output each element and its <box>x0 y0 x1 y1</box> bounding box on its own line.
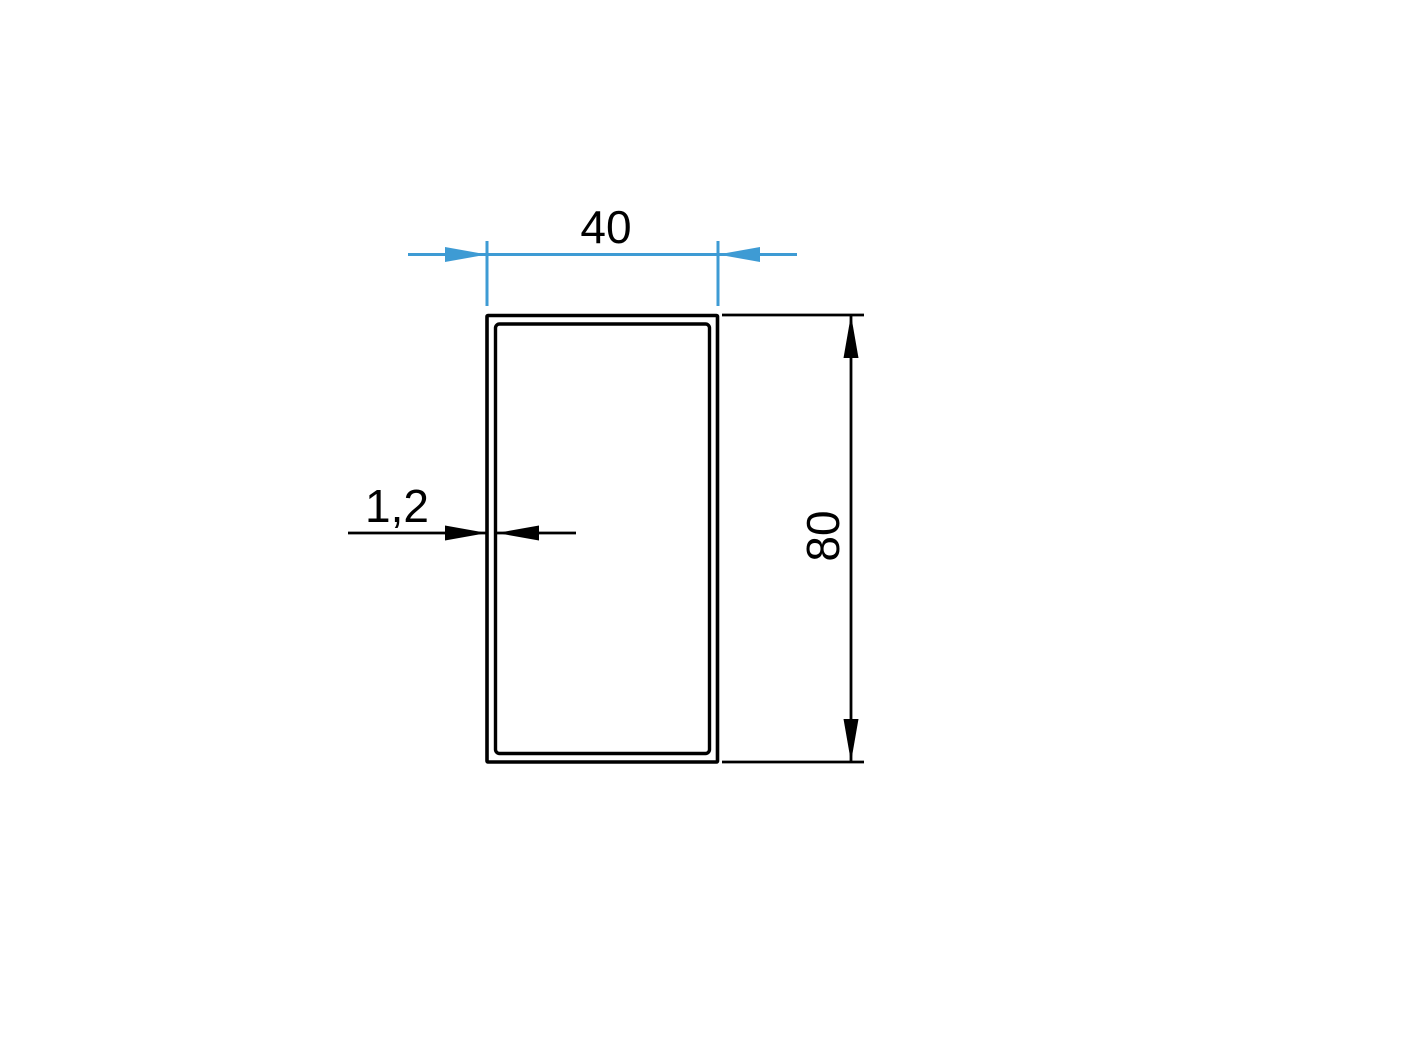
height-arrowhead-up-icon <box>844 315 859 358</box>
height-dimension-value: 80 <box>797 510 849 561</box>
thickness-arrowhead-right-icon <box>445 526 487 541</box>
tube-outer-wall <box>487 316 718 763</box>
width-dimension-value: 40 <box>580 201 631 253</box>
width-dimension: 40 <box>408 201 797 306</box>
technical-drawing: 40 80 1,2 <box>0 0 1413 1058</box>
height-arrowhead-down-icon <box>844 719 859 762</box>
height-dimension: 80 <box>722 315 864 762</box>
width-arrowhead-left-icon <box>445 247 487 262</box>
drawing-canvas: 40 80 1,2 <box>0 0 1413 1058</box>
wall-thickness-dimension: 1,2 <box>348 480 576 541</box>
thickness-dimension-value: 1,2 <box>365 480 429 532</box>
thickness-arrowhead-left-icon <box>497 526 539 541</box>
tube-inner-wall <box>496 324 710 754</box>
width-arrowhead-right-icon <box>718 247 760 262</box>
tube-cross-section <box>487 316 718 763</box>
